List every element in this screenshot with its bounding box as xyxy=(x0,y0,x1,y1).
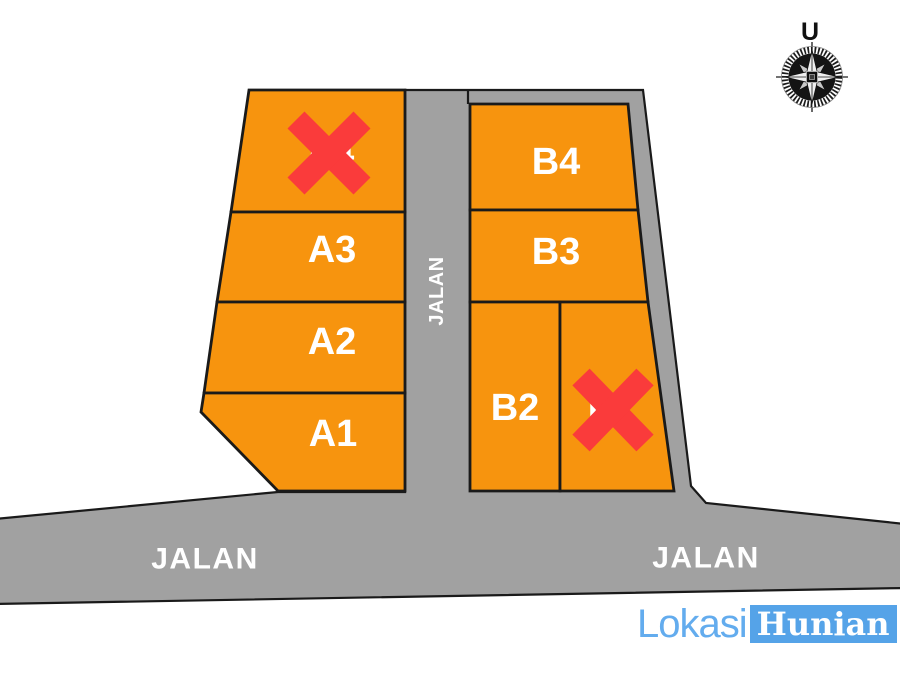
block-a xyxy=(201,90,405,491)
site-plan-page: A4 A3 A2 A1 B4 B3 B2 B1 JALAN JALAN JALA… xyxy=(0,0,900,675)
lot-b2-label: B2 xyxy=(491,387,540,429)
lot-b3-label: B3 xyxy=(532,231,581,273)
road-network xyxy=(0,90,900,604)
site-plan-canvas: A4 A3 A2 A1 B4 B3 B2 B1 JALAN JALAN JALA… xyxy=(0,0,900,675)
compass-rose-icon xyxy=(776,42,848,112)
road-label-bottom-right: JALAN xyxy=(652,542,760,575)
lot-b4-label: B4 xyxy=(532,141,581,183)
logo: Lokasi Hunian xyxy=(637,605,897,643)
logo-text-primary: Lokasi xyxy=(637,605,747,643)
logo-text-secondary: Hunian xyxy=(750,605,897,643)
lot-a2-label: A2 xyxy=(308,321,357,363)
compass-north-label: U xyxy=(801,18,819,46)
road-label-bottom-left: JALAN xyxy=(151,543,259,576)
road-label-vertical: JALAN xyxy=(426,256,448,325)
lot-a1-label: A1 xyxy=(309,413,358,455)
lot-a2-shape xyxy=(204,302,405,393)
lot-a3-label: A3 xyxy=(308,229,357,271)
lot-a1-shape xyxy=(201,393,405,491)
